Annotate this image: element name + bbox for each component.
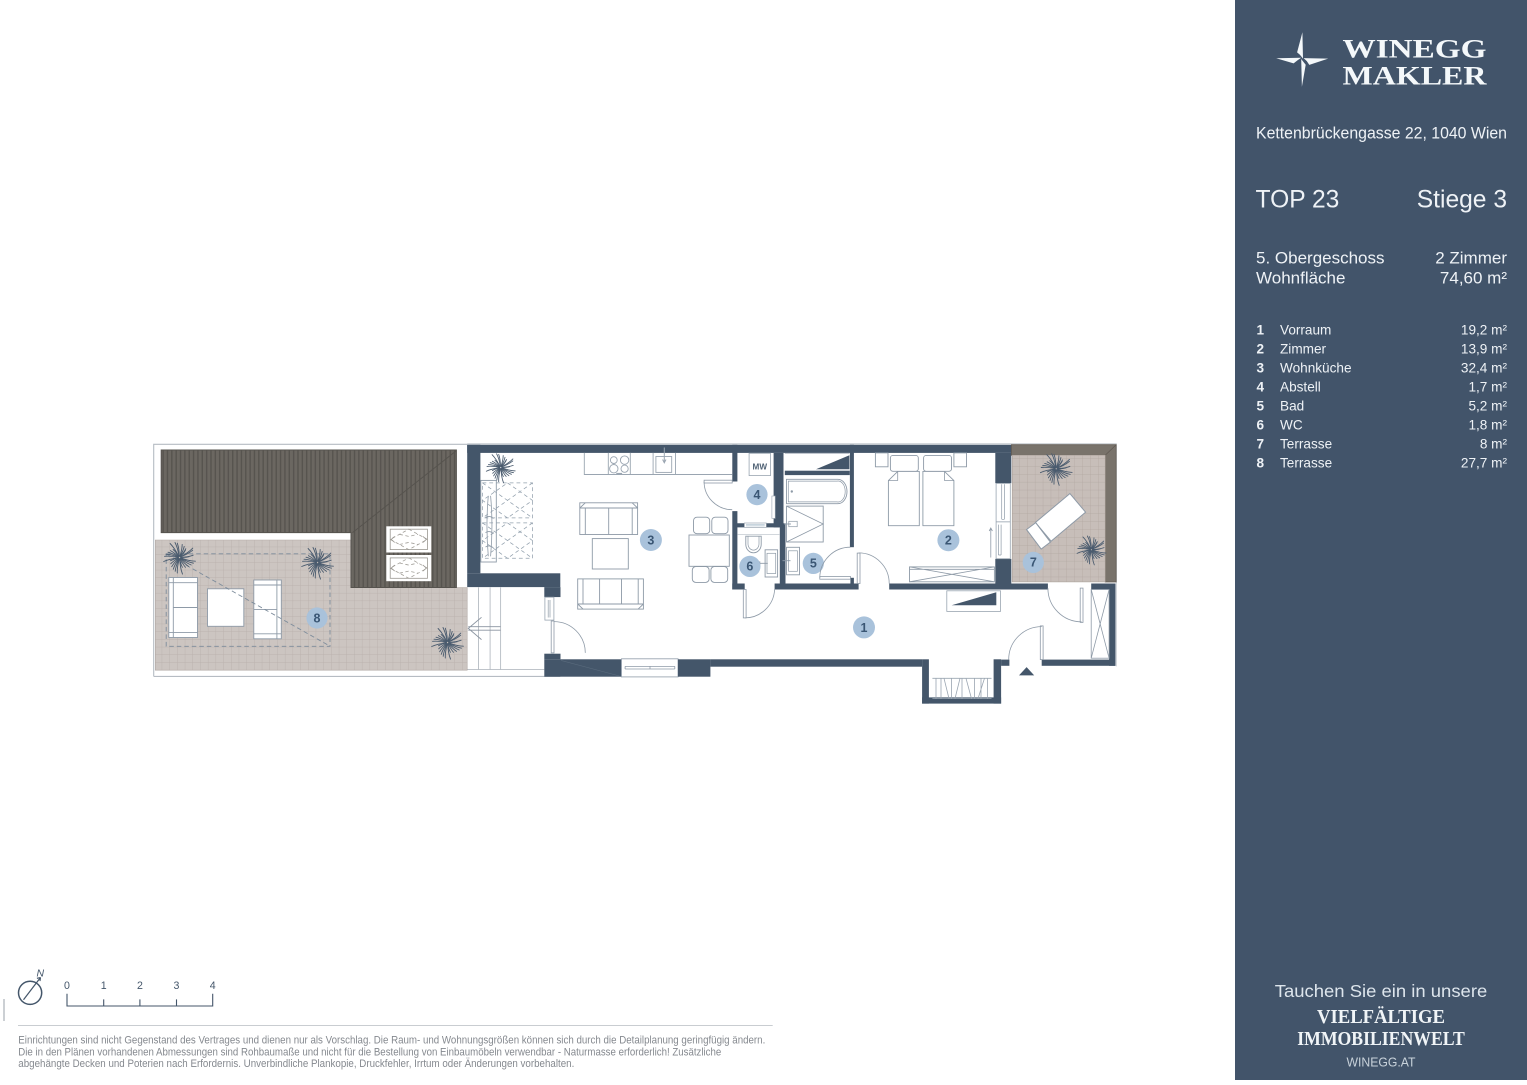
svg-text:19,2 m²: 19,2 m² bbox=[1461, 323, 1508, 338]
svg-text:8: 8 bbox=[314, 611, 321, 625]
svg-text:1: 1 bbox=[1257, 323, 1265, 338]
svg-text:5: 5 bbox=[810, 557, 817, 571]
svg-text:4: 4 bbox=[754, 488, 761, 502]
svg-text:1,7 m²: 1,7 m² bbox=[1468, 380, 1507, 395]
svg-text:Wohnküche: Wohnküche bbox=[1280, 361, 1352, 376]
svg-text:Bad: Bad bbox=[1280, 399, 1304, 414]
svg-text:TOP 23: TOP 23 bbox=[1256, 187, 1340, 214]
svg-text:0: 0 bbox=[64, 980, 70, 992]
svg-text:MAKLER: MAKLER bbox=[1343, 62, 1487, 91]
svg-text:5: 5 bbox=[1257, 399, 1265, 414]
svg-text:1: 1 bbox=[101, 980, 107, 992]
svg-text:Tauchen Sie ein in unsere: Tauchen Sie ein in unsere bbox=[1275, 981, 1488, 1001]
svg-text:2: 2 bbox=[137, 980, 143, 992]
svg-text:Kettenbrückengasse 22, 1040 Wi: Kettenbrückengasse 22, 1040 Wien bbox=[1256, 125, 1507, 143]
svg-text:WC: WC bbox=[1280, 418, 1303, 433]
svg-text:3: 3 bbox=[647, 533, 654, 547]
svg-text:32,4 m²: 32,4 m² bbox=[1461, 361, 1508, 376]
svg-text:Abstell: Abstell bbox=[1280, 380, 1321, 395]
svg-text:4: 4 bbox=[1257, 380, 1265, 395]
svg-text:1,8 m²: 1,8 m² bbox=[1468, 418, 1507, 433]
svg-text:N: N bbox=[37, 968, 45, 980]
svg-text:Wohnfläche: Wohnfläche bbox=[1256, 268, 1345, 287]
svg-text:74,60 m²: 74,60 m² bbox=[1440, 268, 1507, 287]
svg-text:4: 4 bbox=[210, 980, 216, 992]
svg-text:Stiege 3: Stiege 3 bbox=[1417, 187, 1507, 214]
svg-text:5. Obergeschoss: 5. Obergeschoss bbox=[1256, 249, 1385, 268]
svg-text:1: 1 bbox=[861, 621, 868, 635]
svg-text:Terrasse: Terrasse bbox=[1280, 456, 1332, 471]
svg-text:2: 2 bbox=[945, 534, 952, 548]
svg-text:5,2 m²: 5,2 m² bbox=[1468, 399, 1507, 414]
svg-text:6: 6 bbox=[1257, 418, 1265, 433]
svg-text:Vorraum: Vorraum bbox=[1280, 323, 1331, 338]
svg-text:3: 3 bbox=[1257, 361, 1265, 376]
svg-text:8: 8 bbox=[1257, 456, 1265, 471]
svg-text:Terrasse: Terrasse bbox=[1280, 437, 1332, 452]
svg-text:27,7 m²: 27,7 m² bbox=[1461, 456, 1508, 471]
svg-text:WINEGG: WINEGG bbox=[1343, 35, 1487, 64]
svg-text:IMMOBILIENWELT: IMMOBILIENWELT bbox=[1297, 1028, 1465, 1050]
svg-text:VIELFÄLTIGE: VIELFÄLTIGE bbox=[1317, 1005, 1445, 1028]
svg-text:WINEGG.AT: WINEGG.AT bbox=[1347, 1055, 1416, 1069]
svg-text:7: 7 bbox=[1030, 556, 1037, 570]
svg-text:2 Zimmer: 2 Zimmer bbox=[1435, 249, 1507, 268]
svg-text:abgehängte Decken und Poterien: abgehängte Decken und Poterien nach Erfo… bbox=[18, 1058, 574, 1070]
svg-text:6: 6 bbox=[746, 560, 753, 574]
svg-text:Zimmer: Zimmer bbox=[1280, 342, 1327, 357]
svg-text:2: 2 bbox=[1257, 342, 1265, 357]
svg-text:13,9 m²: 13,9 m² bbox=[1461, 342, 1508, 357]
svg-text:Die in den Plänen vorhandenen: Die in den Plänen vorhandenen Abmessunge… bbox=[18, 1046, 721, 1058]
svg-text:8 m²: 8 m² bbox=[1480, 437, 1508, 452]
svg-text:Einrichtungen sind nicht Gegen: Einrichtungen sind nicht Gegenstand des … bbox=[18, 1035, 765, 1047]
svg-text:7: 7 bbox=[1257, 437, 1265, 452]
svg-text:3: 3 bbox=[174, 980, 180, 992]
svg-text:MW: MW bbox=[753, 462, 768, 472]
